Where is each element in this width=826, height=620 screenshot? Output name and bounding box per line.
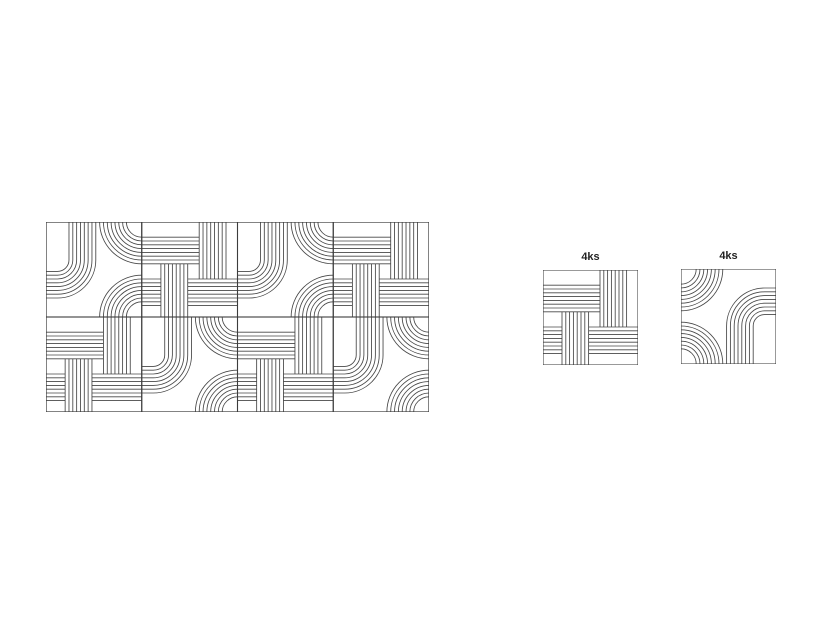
curve-tile-drawing (681, 269, 776, 364)
panel-tile-curve (46, 222, 142, 317)
panel-tile-curve (333, 317, 429, 412)
assembled-panel-drawing (46, 222, 429, 412)
panel-tile-weave (46, 317, 142, 412)
panel-tile-weave (543, 270, 638, 365)
drawing-canvas: 4ks 4ks (0, 0, 826, 620)
reference-tile-weave: 4ks (543, 250, 638, 365)
tile-quantity-label: 4ks (681, 249, 776, 263)
reference-tile-curve: 4ks (681, 249, 776, 364)
panel-tile-curve (238, 222, 334, 317)
panel-tile-curve (142, 317, 238, 412)
weave-tile-drawing (543, 270, 638, 365)
tile-quantity-label: 4ks (543, 250, 638, 264)
panel-tile-weave (142, 222, 238, 317)
panel-tile-weave (333, 222, 429, 317)
panel-tile-weave (238, 317, 334, 412)
panel-tile-curve (681, 269, 776, 364)
